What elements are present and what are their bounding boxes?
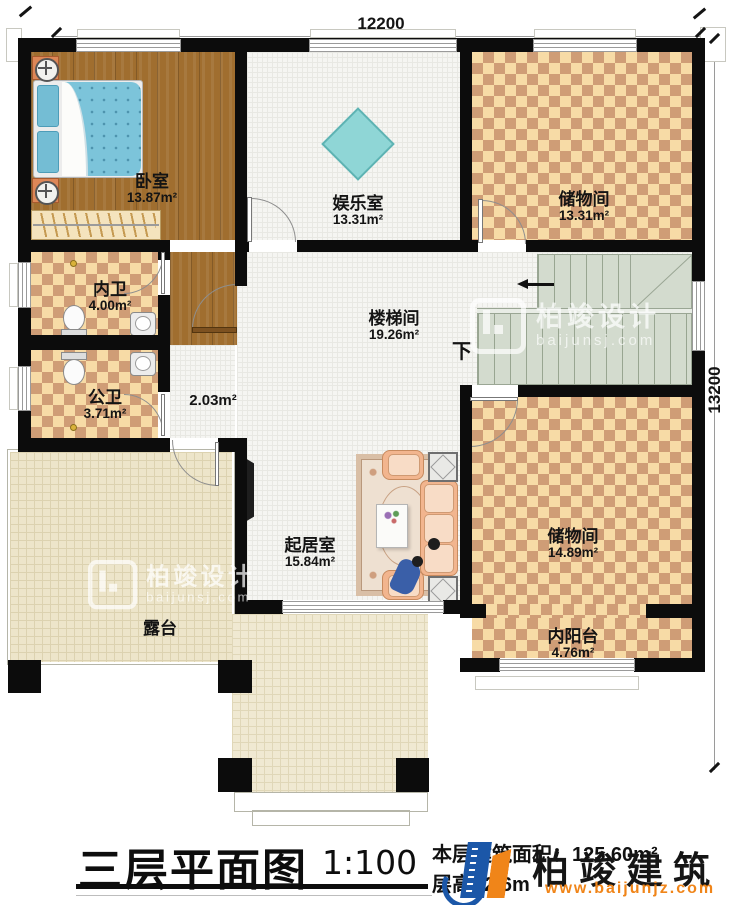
plan-scale: 1:100 bbox=[322, 843, 417, 882]
public-bath-name: 公卫 bbox=[84, 389, 127, 407]
storageright-door-leaf bbox=[470, 397, 518, 401]
wall-publicbath-right-a bbox=[158, 350, 170, 392]
break-mark-top-left bbox=[19, 6, 32, 18]
wall-corridor-stub bbox=[235, 252, 247, 286]
coffee-table-flowers bbox=[382, 509, 402, 525]
publicbath-drain bbox=[70, 424, 77, 431]
title-underline-thin bbox=[76, 895, 432, 896]
terrace-name: 露台 bbox=[143, 620, 177, 638]
sofa-cushion-1 bbox=[424, 484, 454, 513]
bedroom-label: 卧室 13.87m² bbox=[127, 173, 177, 205]
bed-pillow-2 bbox=[37, 131, 59, 173]
publicbath-sink-basin bbox=[135, 356, 151, 371]
lamp-top bbox=[35, 58, 59, 82]
window-innerbath-left bbox=[19, 263, 30, 307]
entertainment-label: 娱乐室 13.31m² bbox=[333, 195, 384, 227]
armchair-top-cushion bbox=[388, 454, 420, 476]
bedroom-door-leaf bbox=[192, 327, 237, 333]
stairs-lower-flight bbox=[477, 313, 692, 385]
inner-balcony-area: 4.76m² bbox=[548, 646, 599, 660]
wall-publicbath-bottom bbox=[18, 438, 170, 452]
wall-ent-bottom-b bbox=[297, 240, 472, 252]
stair-hall-area: 19.26m² bbox=[369, 328, 420, 342]
innerbath-drain bbox=[70, 260, 77, 267]
porch-step-1 bbox=[234, 792, 428, 812]
wall-storage-balcony-divider-a bbox=[460, 604, 486, 618]
window-storagetop-top bbox=[534, 40, 636, 51]
public-bath-label: 公卫 3.71m² bbox=[84, 389, 127, 421]
living-name: 起居室 bbox=[285, 537, 336, 555]
terrace-column-2 bbox=[218, 660, 252, 693]
sill-balcony-bottom bbox=[475, 676, 639, 690]
hall-area: 2.03m² bbox=[189, 393, 237, 409]
bed-pillow-1 bbox=[37, 85, 59, 127]
porch-column-2 bbox=[396, 758, 429, 792]
sill-storagetop-top bbox=[534, 29, 636, 38]
storage-right-area: 14.89m² bbox=[548, 546, 599, 560]
innerbath-sink-basin bbox=[135, 316, 151, 331]
inner-bath-name: 内卫 bbox=[89, 281, 132, 299]
stair-hall-label: 楼梯间 19.26m² bbox=[369, 310, 420, 342]
publicbath-door-leaf bbox=[161, 394, 165, 436]
stairs-direction-arrow bbox=[528, 283, 554, 286]
person-figure-head bbox=[412, 556, 423, 567]
inner-bath-label: 内卫 4.00m² bbox=[89, 281, 132, 313]
inner-balcony-label: 内阳台 4.76m² bbox=[548, 628, 599, 660]
wall-right bbox=[692, 38, 705, 672]
dimension-width: 12200 bbox=[340, 14, 422, 34]
storage-right-label: 储物间 14.89m² bbox=[548, 528, 599, 560]
dimension-height: 13200 bbox=[705, 365, 725, 415]
storage-right-name: 储物间 bbox=[548, 528, 599, 546]
stairs-down-label: 下 bbox=[452, 342, 472, 363]
wall-stairwell-bottom-b bbox=[518, 385, 692, 397]
terrace-floor bbox=[10, 452, 232, 662]
window-stairs-right bbox=[693, 282, 704, 350]
wall-living-left bbox=[235, 438, 247, 614]
living-label: 起居室 15.84m² bbox=[285, 537, 336, 569]
window-bedroom-top bbox=[77, 40, 180, 51]
wall-balcony-bottom-a bbox=[460, 658, 500, 672]
wall-storageright-left bbox=[460, 385, 472, 618]
storagetop-door-leaf bbox=[478, 199, 483, 243]
inner-balcony-name: 内阳台 bbox=[548, 628, 599, 646]
bedroom-area: 13.87m² bbox=[127, 191, 177, 205]
wall-storage-balcony-divider-b bbox=[646, 604, 692, 618]
person-figure-2 bbox=[428, 538, 440, 550]
wall-bedroom-ent-divider bbox=[235, 38, 247, 252]
wall-ent-storage-divider bbox=[460, 38, 472, 252]
storage-top-name: 储物间 bbox=[559, 191, 610, 209]
lamp-bottom bbox=[35, 181, 59, 205]
break-mark-top-right bbox=[693, 8, 706, 20]
brand-logo-icon bbox=[442, 840, 528, 902]
side-table-top bbox=[428, 452, 458, 482]
sofa-cushion-2 bbox=[424, 514, 454, 543]
sill-bedroom-top bbox=[77, 29, 180, 38]
terrace-label: 露台 bbox=[143, 620, 177, 638]
porch-step-2 bbox=[252, 810, 410, 826]
hall-area-label: 2.03m² bbox=[189, 393, 237, 409]
inner-bath-area: 4.00m² bbox=[89, 299, 132, 313]
sofa-cushion-3 bbox=[424, 544, 454, 573]
porch-column-1 bbox=[218, 758, 252, 792]
window-entertainment-top bbox=[310, 40, 456, 51]
title-underline bbox=[76, 884, 428, 889]
floor-plan: 下 bbox=[0, 0, 750, 905]
balcony-opening-floor bbox=[486, 604, 646, 618]
entertainment-area: 13.31m² bbox=[333, 213, 384, 227]
wall-storagetop-bottom-b bbox=[526, 240, 692, 252]
publicbath-door-arc bbox=[124, 394, 164, 436]
publicbath-toilet-bowl bbox=[63, 359, 85, 385]
wardrobe-rail bbox=[33, 224, 159, 226]
window-balcony-bottom bbox=[500, 660, 634, 670]
storage-top-area: 13.31m² bbox=[559, 209, 610, 223]
innerbath-door-leaf bbox=[161, 252, 165, 294]
brand-website: www.baijunjz.com bbox=[545, 880, 715, 898]
public-bath-area: 3.71m² bbox=[84, 407, 127, 421]
stairs-direction-arrowhead bbox=[517, 279, 528, 289]
window-publicbath-left bbox=[19, 367, 30, 410]
hall-living-door-leaf bbox=[215, 442, 219, 486]
living-area: 15.84m² bbox=[285, 555, 336, 569]
stairs-flight-divider bbox=[477, 308, 692, 314]
terrace-column-1 bbox=[8, 660, 41, 693]
sill-publicbath-left bbox=[9, 367, 18, 410]
storage-top-label: 储物间 13.31m² bbox=[559, 191, 610, 223]
wall-balcony-bottom-b bbox=[634, 658, 692, 672]
brand-logo-building-orange bbox=[487, 849, 512, 898]
innerbath-toilet-bowl bbox=[63, 305, 85, 331]
entertainment-door-leaf bbox=[247, 197, 252, 242]
wall-bedroom-bottom bbox=[18, 240, 170, 252]
bedroom-name: 卧室 bbox=[127, 173, 177, 191]
stair-hall-name: 楼梯间 bbox=[369, 310, 420, 328]
wall-living-bottom-a bbox=[235, 600, 283, 614]
dim-tick-right-bottom bbox=[709, 762, 720, 773]
window-living-bottom bbox=[283, 602, 443, 612]
entertainment-name: 娱乐室 bbox=[333, 195, 384, 213]
sill-innerbath-left bbox=[9, 263, 18, 307]
wall-bath-divider bbox=[18, 335, 170, 350]
